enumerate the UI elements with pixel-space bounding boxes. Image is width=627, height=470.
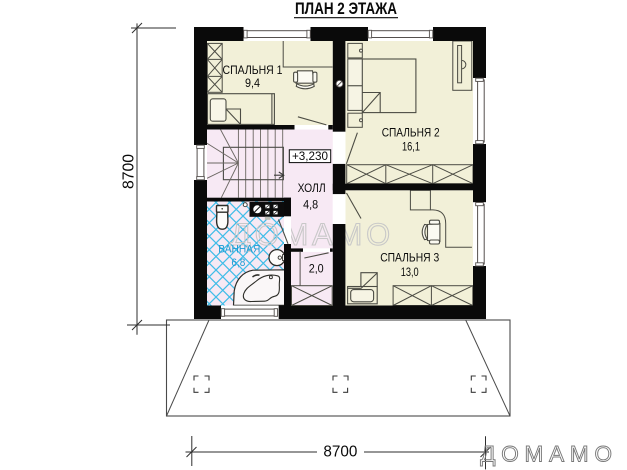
svg-text:8700: 8700 [323, 444, 357, 461]
svg-text:ПЛАН 2 ЭТАЖА: ПЛАН 2 ЭТАЖА [295, 0, 397, 18]
svg-text:ВАННАЯ: ВАННАЯ [218, 243, 260, 255]
svg-text:8700: 8700 [121, 154, 138, 189]
svg-text:СПАЛЬНЯ 3: СПАЛЬНЯ 3 [380, 251, 439, 265]
svg-text:СПАЛЬНЯ 2: СПАЛЬНЯ 2 [382, 126, 440, 140]
svg-text:2,0: 2,0 [309, 262, 324, 276]
svg-text:9,4: 9,4 [245, 76, 260, 90]
svg-text:+3,230: +3,230 [292, 151, 328, 163]
svg-text:4,8: 4,8 [303, 198, 318, 212]
svg-text:13,0: 13,0 [401, 265, 419, 279]
svg-text:6,8: 6,8 [231, 257, 245, 269]
svg-text:ХОЛЛ: ХОЛЛ [298, 181, 326, 195]
svg-text:ДОМАМО: ДОМАМО [480, 441, 618, 466]
svg-text:16,1: 16,1 [402, 140, 420, 154]
